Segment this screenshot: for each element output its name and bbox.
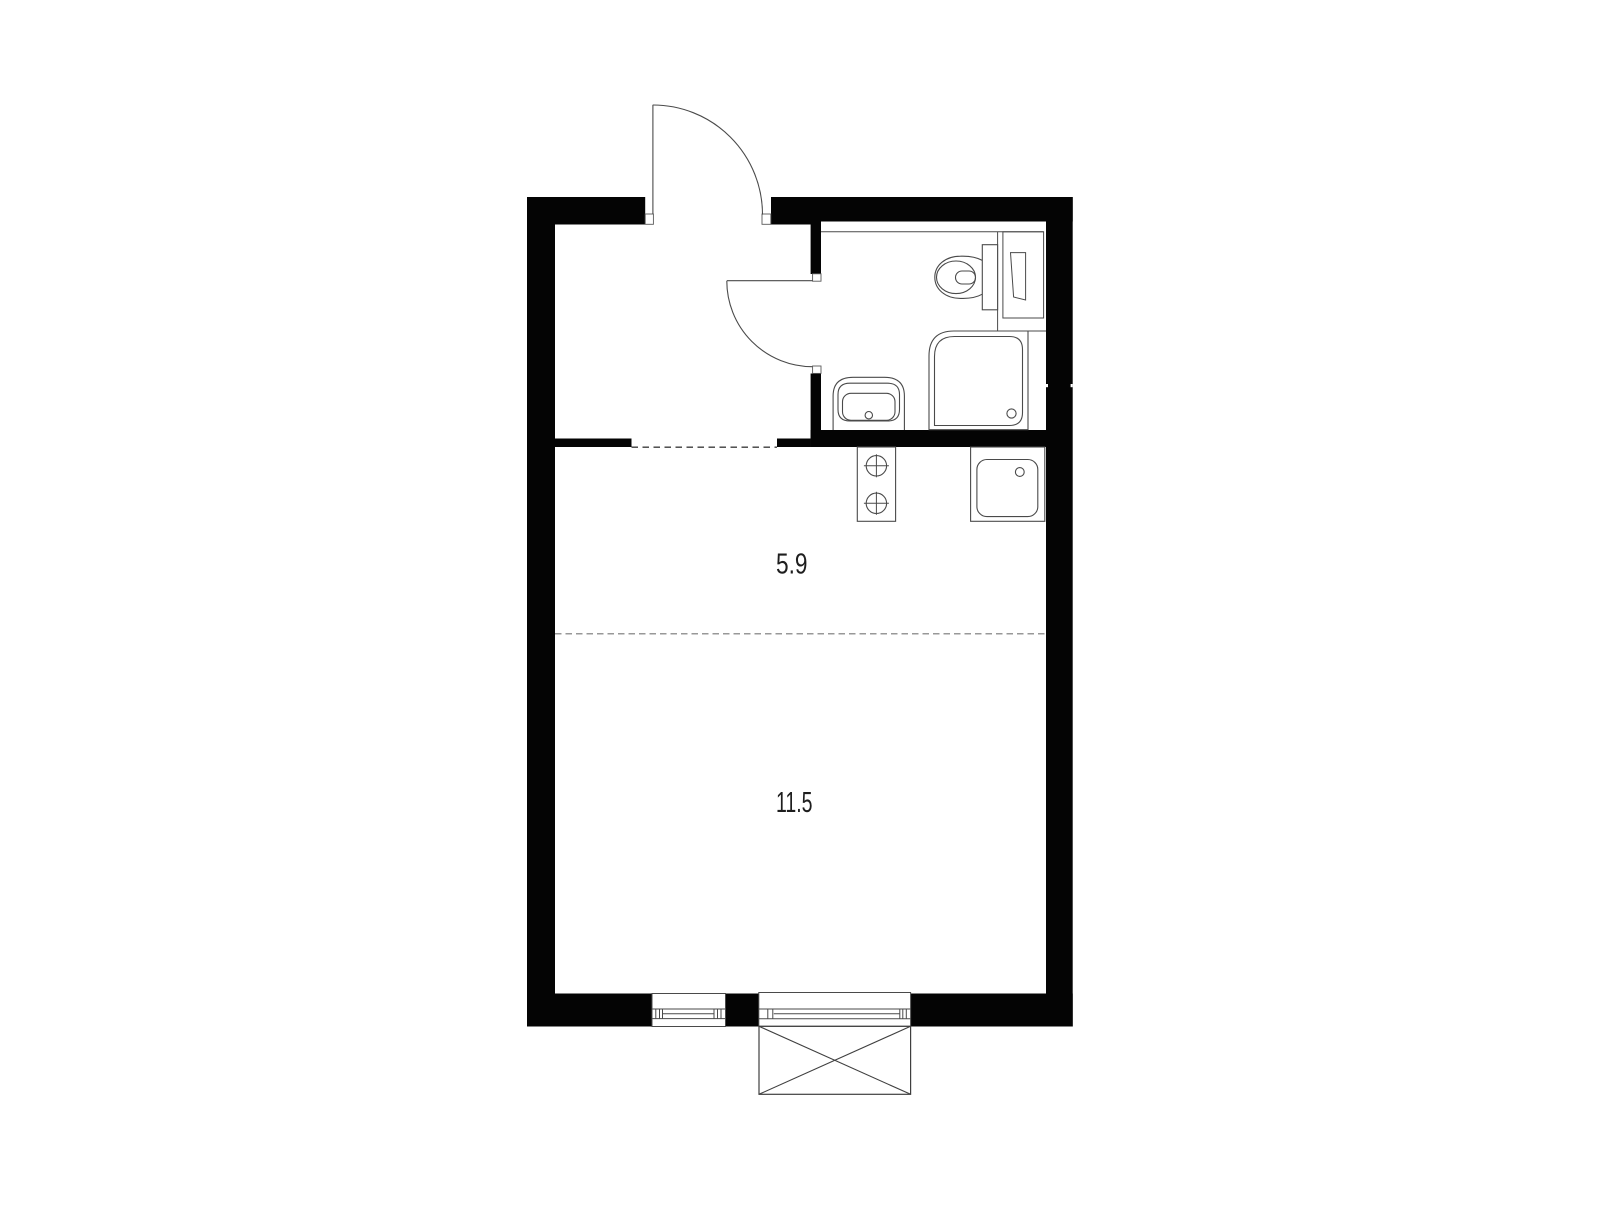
- svg-text:11.5: 11.5: [776, 787, 813, 819]
- svg-text:5.9: 5.9: [776, 549, 808, 581]
